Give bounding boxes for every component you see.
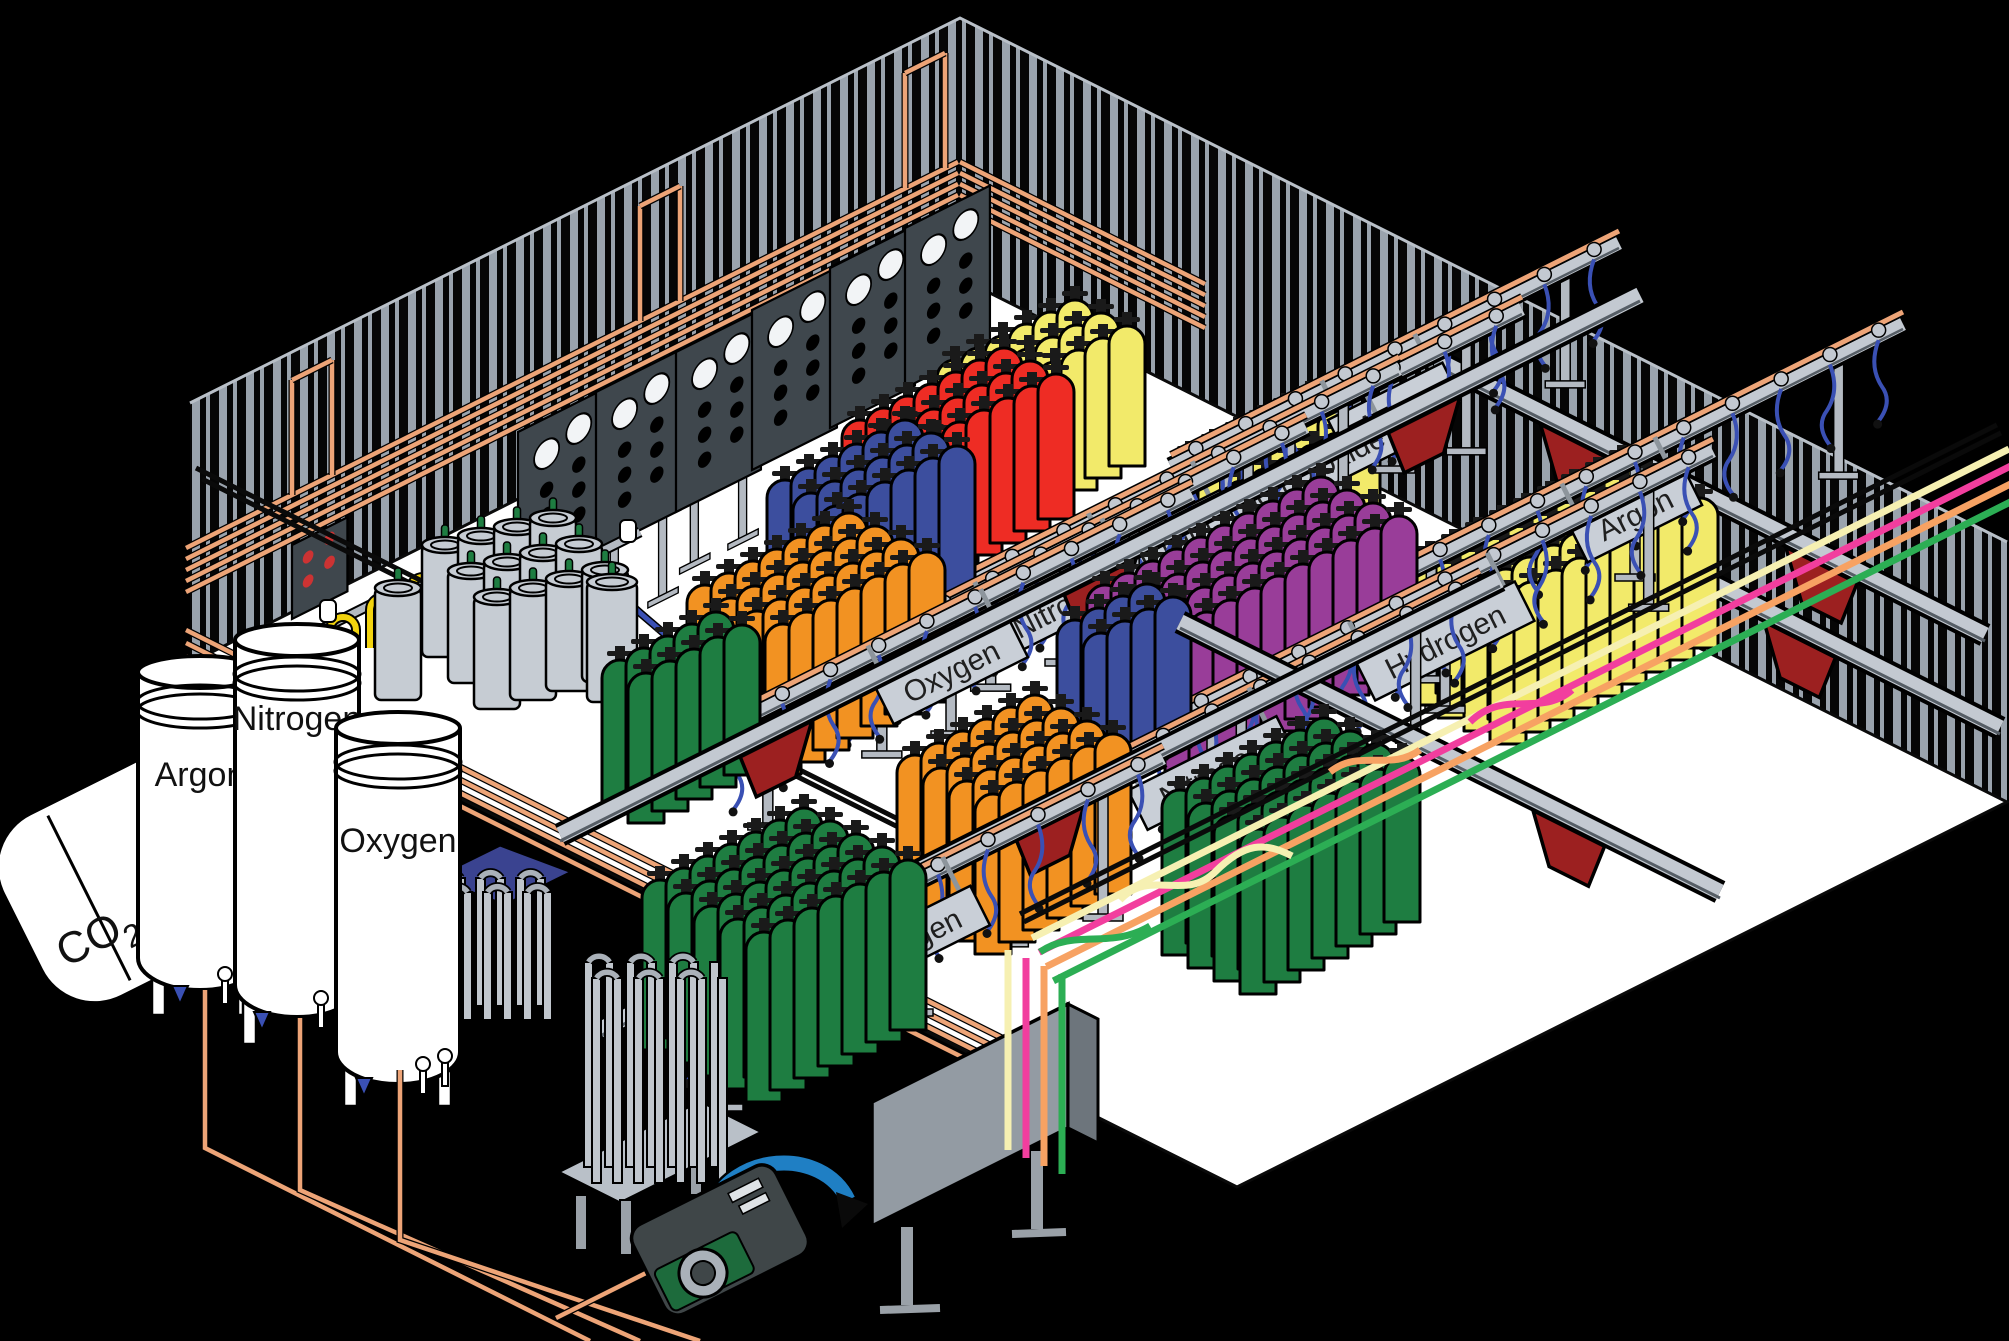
oxygen-tank: Oxygen <box>335 712 461 1106</box>
manifold-valve <box>1433 542 1447 556</box>
vaporizer-fin <box>503 892 512 1020</box>
manifold-valve <box>1315 395 1329 409</box>
manifold-valve <box>1031 808 1045 822</box>
manifold-valve <box>1113 517 1127 531</box>
manifold-valve <box>1065 542 1079 556</box>
manifold-valve <box>1677 421 1691 435</box>
manifold-valve <box>1535 523 1549 537</box>
manifold-valve <box>1081 783 1095 797</box>
vaporizer-fin <box>697 978 706 1183</box>
vaporizer-fin <box>613 978 622 1183</box>
vaporizer-fin <box>592 978 601 1183</box>
vaporizer-fin <box>523 892 532 1020</box>
manifold-valve <box>1489 309 1503 323</box>
manifold-valve <box>1366 369 1380 383</box>
gas-plant-illustration: ArgonCarbon DioxideHeliumNitrogenOxygenA… <box>0 0 2009 1341</box>
vaporizer-fin <box>463 892 472 1020</box>
manifold-valve <box>1531 494 1545 508</box>
manifold-valve <box>1725 396 1739 410</box>
panel-leg <box>900 1226 914 1306</box>
manifold-valve <box>1227 450 1241 464</box>
vaporizer-fin <box>483 892 492 1020</box>
vaporizer-fin <box>634 978 643 1183</box>
gas-cylinder <box>1038 374 1074 519</box>
vaporizer-fin <box>676 978 685 1183</box>
manifold-valve <box>1537 267 1551 281</box>
vaporizer-fin <box>655 978 664 1183</box>
manifold-valve <box>1131 758 1145 772</box>
manifold-valve <box>1823 348 1837 362</box>
vaporizer-fin <box>718 978 727 1183</box>
manifold-valve <box>1774 372 1788 386</box>
manifold-valve <box>824 663 838 677</box>
manifold-valve <box>1628 445 1642 459</box>
manifold-valve <box>1438 335 1452 349</box>
manifold-valve <box>1584 499 1598 513</box>
manifold-valve <box>1275 426 1289 440</box>
rail-post <box>1644 483 1654 608</box>
manifold-valve <box>1633 475 1647 489</box>
dewar <box>375 568 421 700</box>
gas-cylinder <box>1109 326 1145 466</box>
manifold-valve <box>872 638 886 652</box>
manifold-valve <box>920 614 934 628</box>
manifold-valve <box>1579 469 1593 483</box>
oxygen-tank-label: Oxygen <box>339 822 456 860</box>
manifold-valve <box>1161 493 1175 507</box>
manifold-valve <box>1682 450 1696 464</box>
manifold-valve <box>775 687 789 701</box>
manifold-valve <box>1482 518 1496 532</box>
rail-post <box>1834 356 1844 476</box>
gas-cylinder <box>890 860 926 1030</box>
manifold-valve <box>1016 566 1030 580</box>
manifold-valve <box>1587 242 1601 256</box>
manifold-valve <box>981 833 995 847</box>
vaporizer-unit-2 <box>584 956 727 1183</box>
vaporizer-fin <box>543 892 552 1020</box>
manifold-valve <box>1872 323 1886 337</box>
argon-tank-label: Argon <box>155 756 246 794</box>
